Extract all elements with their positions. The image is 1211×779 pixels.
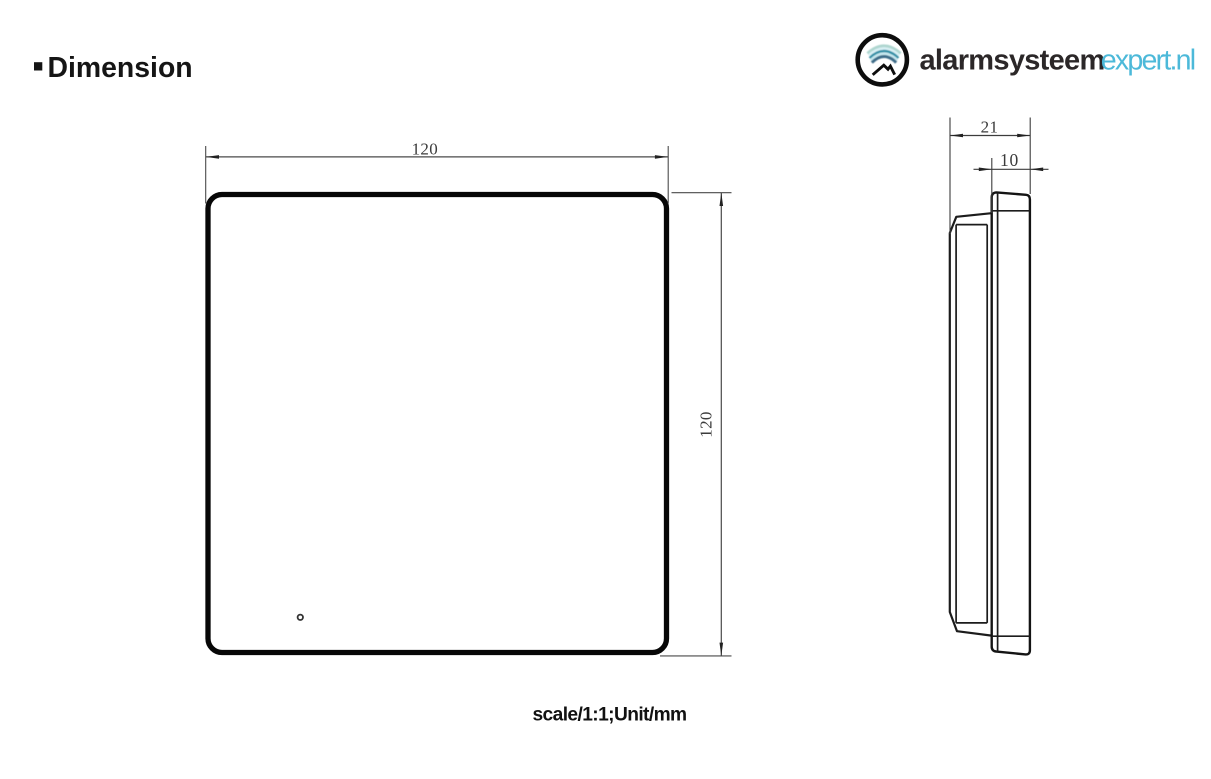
svg-text:120: 120	[412, 139, 438, 158]
svg-text:alarmsysteem: alarmsysteem	[920, 45, 1105, 77]
svg-text:10: 10	[1000, 150, 1019, 170]
svg-text:21: 21	[981, 118, 999, 137]
svg-text:120: 120	[696, 411, 715, 437]
svg-text:expert.nl: expert.nl	[1101, 45, 1195, 77]
svg-text:Dimension: Dimension	[48, 52, 193, 84]
svg-text:scale/1:1;Unit/mm: scale/1:1;Unit/mm	[532, 705, 686, 726]
